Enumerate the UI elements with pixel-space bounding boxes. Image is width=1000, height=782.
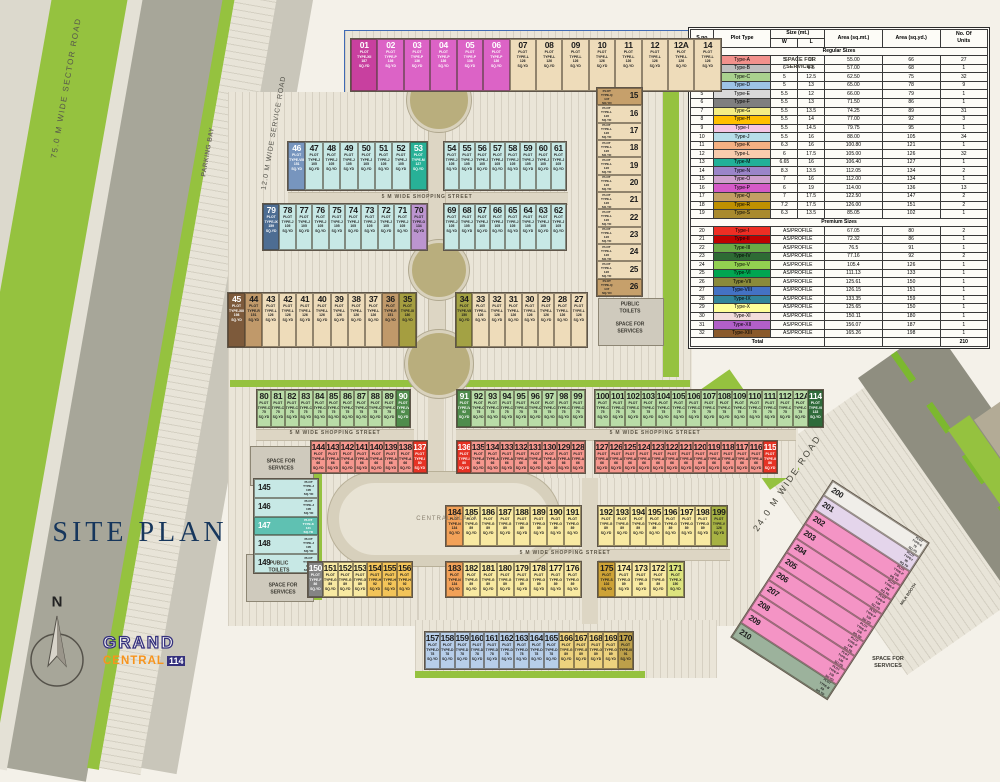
plot-label: PLOTTYPE-J105SQ.YD (397, 215, 409, 233)
plot-number: 11 (624, 41, 632, 50)
plot-number: 31 (509, 295, 518, 304)
plot-15: 15PLOTTYPE-Q147SQ.YD (597, 88, 642, 105)
plot-number: 78 (283, 206, 292, 215)
plot-number: 57 (493, 144, 502, 153)
plot-133: 133PLOTTYPE-A66SQ.YD (500, 441, 514, 473)
plot-130: 130PLOTTYPE-A66SQ.YD (542, 441, 556, 473)
plot-number: 121 (679, 443, 692, 452)
plot-label: PLOTTYPE-D78SQ.YD (471, 643, 483, 661)
plot-number: 60 (539, 144, 548, 153)
plot-91: 91PLOTTYPE-IV92SQ.YD (457, 390, 471, 427)
plot-label: PLOTTYPE-L126SQ.YD (601, 262, 612, 278)
plot-154: 154PLOTTYPE-H92SQ.YD (367, 562, 382, 597)
plot-number: 201 (820, 501, 835, 515)
plot-number: 179 (515, 564, 528, 573)
plot-label: PLOTTYPE-G89SQ.YD (648, 517, 661, 535)
plot-number: 85 (329, 392, 338, 401)
plot-57: 57PLOTTYPE-J105SQ.YD (490, 142, 505, 190)
plot-label: PLOTTYPE-J105SQ.YD (461, 215, 473, 233)
plot-label: PLOTTYPE-IV92SQ.YD (396, 401, 409, 419)
plot-label: PLOTTYPE-G89SQ.YD (549, 517, 562, 535)
plot-label: PLOTTYPE-P136SQ.YD (490, 50, 502, 68)
plot-89: 89PLOTTYPE-C75SQ.YD (382, 390, 396, 427)
plot-label: PLOTTYPE-D78SQ.YD (545, 643, 557, 661)
plot-number: 171 (669, 564, 682, 573)
plot-label: PLOTTYPE-S102SQ.YD (600, 573, 612, 591)
plot-label: PLOTTYPE-L126SQ.YD (316, 304, 328, 322)
plot-59: 59PLOTTYPE-J105SQ.YD (520, 142, 535, 190)
plot-number: 99 (573, 392, 582, 401)
plot-number: 54 (447, 144, 456, 153)
plot-number: 62 (554, 206, 563, 215)
plot-label: PLOTTYPE-A66SQ.YD (624, 452, 636, 470)
plot-number: 46 (292, 144, 301, 153)
plot-32: 32PLOTTYPE-L126SQ.YD (489, 293, 505, 347)
plot-strip: 192PLOTTYPE-G89SQ.YD193PLOTTYPE-G89SQ.YD… (597, 505, 728, 547)
plot-37: 37PLOTTYPE-L126SQ.YD (365, 293, 382, 347)
plot-label: PLOTTYPE-L126SQ.YD (265, 304, 277, 322)
plot-label: PLOTTYPE-G89SQ.YD (652, 573, 665, 591)
plot-105: 105PLOTTYPE-C75SQ.YD (671, 390, 686, 427)
plot-label: PLOTTYPE-XIII198SQ.YD (229, 304, 244, 322)
plot-label: PLOTTYPE-L126SQ.YD (350, 304, 362, 322)
plot-186: 186PLOTTYPE-G89SQ.YD (480, 506, 497, 546)
plot-23: 23PLOTTYPE-L126SQ.YD (597, 227, 642, 244)
plot-170: 170PLOTTYPE-III91SQ.YD (618, 632, 633, 669)
plot-label: PLOTTYPE-A66SQ.YD (680, 452, 692, 470)
plot-label: PLOTTYPE-IX159SQ.YD (265, 215, 278, 233)
plot-number: 09 (571, 41, 580, 50)
plot-number: 112A (793, 392, 808, 401)
plot-number: 76 (316, 206, 325, 215)
plot-93: 93PLOTTYPE-C75SQ.YD (485, 390, 499, 427)
plot-94: 94PLOTTYPE-C75SQ.YD (500, 390, 514, 427)
plot-116: 116PLOTTYPE-A66SQ.YD (749, 441, 763, 473)
plot-number: 197 (680, 508, 693, 517)
plot-label: PLOTTYPE-B68SQ.YD (815, 677, 833, 697)
table-row: S.noPlot TypeSize (mt.)Area (sq.mt.)Area… (691, 30, 988, 39)
plot-33: 33PLOTTYPE-L126SQ.YD (472, 293, 488, 347)
plot-label: PLOTTYPE-L126SQ.YD (556, 304, 568, 322)
plot-label: PLOTTYPE-C75SQ.YD (341, 401, 353, 419)
plot-05: 05PLOTTYPE-P136SQ.YD (457, 39, 483, 91)
plot-65: 65PLOTTYPE-J105SQ.YD (505, 204, 520, 250)
plot-117: 117PLOTTYPE-A66SQ.YD (735, 441, 749, 473)
plot-19: 19PLOTTYPE-L126SQ.YD (597, 157, 642, 174)
table-row: 17Type-Q717.5122.501472 (691, 192, 988, 201)
plot-number: 87 (357, 392, 366, 401)
plot-label: PLOTTYPE-A66SQ.YD (370, 452, 382, 470)
plot-number: 174 (617, 564, 630, 573)
plot-79: 79PLOTTYPE-IX159SQ.YD (263, 204, 279, 250)
plot-145: 145PLOTTYPE-J105SQ.YD (254, 479, 318, 498)
plot-71: 71PLOTTYPE-J105SQ.YD (394, 204, 410, 250)
plot-14: 14PLOTTYPE-L126SQ.YD (694, 39, 720, 91)
plot-label: PLOTTYPE-J105SQ.YD (491, 153, 503, 171)
plot-label: PLOTTYPE-XII187SQ.YD (357, 50, 371, 68)
plot-number: 193 (616, 508, 629, 517)
plot-34: 34PLOTTYPE-VII150SQ.YD (456, 293, 472, 347)
plot-label: PLOTTYPE-A66SQ.YD (596, 452, 608, 470)
plot-182: 182PLOTTYPE-G89SQ.YD (463, 562, 480, 597)
plot-183: 183PLOTTYPE-N134SQ.YD (446, 562, 463, 597)
plot-label: PLOTTYPE-C75SQ.YD (272, 401, 284, 419)
table-row: Regular Sizes (691, 47, 988, 56)
table-row: 9Type-I5.514.579.75951 (691, 124, 988, 133)
plot-number: 209 (746, 614, 761, 628)
label-space-for-services: SPACE FOR SERVICES (868, 656, 908, 670)
plot-number: 199 (712, 508, 725, 517)
plot-194: 194PLOTTYPE-G89SQ.YD (630, 506, 646, 546)
plot-114: 114PLOTTYPE-VI133SQ.YD (808, 390, 823, 427)
plot-138: 138PLOTTYPE-A66SQ.YD (398, 441, 413, 473)
plot-69: 69PLOTTYPE-J105SQ.YD (444, 204, 459, 250)
plot-label: PLOTTYPE-L126SQ.YD (702, 50, 714, 68)
plot-106: 106PLOTTYPE-C75SQ.YD (686, 390, 701, 427)
plot-number: 65 (508, 206, 517, 215)
plot-number: 14 (703, 41, 712, 50)
plot-number: 17 (630, 127, 638, 136)
plot-label: PLOTTYPE-G89SQ.YD (566, 517, 579, 535)
plot-label: PLOTTYPE-C75SQ.YD (472, 401, 484, 419)
plot-label: PLOTTYPE-H92SQ.YD (369, 573, 381, 591)
plot-label: PLOTTYPE-C75SQ.YD (557, 401, 569, 419)
plot-label: PLOTTYPE-O134SQ.YD (413, 215, 426, 233)
plot-label: PLOTTYPE-G89SQ.YD (516, 517, 529, 535)
label-5-m-wide-shopping-street: 5 M WIDE SHOPPING STREET (382, 194, 473, 200)
plot-label: PLOTTYPE-L126SQ.YD (601, 245, 612, 261)
plot-number: 133 (500, 443, 513, 452)
plot-number: 82 (287, 392, 296, 401)
plot-number: 67 (478, 206, 487, 215)
plot-118: 118PLOTTYPE-A66SQ.YD (721, 441, 735, 473)
plot-46: 46PLOTTYPE-VIII151SQ.YD (288, 142, 305, 190)
table-row: 28Type-IXAS/PROFILE133.351591 (691, 295, 988, 304)
plot-strip: 127PLOTTYPE-A66SQ.YD126PLOTTYPE-A66SQ.YD… (594, 440, 778, 474)
table-row: 27Type-VIIIAS/PROFILE126.151511 (691, 287, 988, 296)
plot-strip: 144PLOTTYPE-A66SQ.YD143PLOTTYPE-A66SQ.YD… (310, 440, 428, 474)
table-row: 20Type-IAS/PROFILE67.05802 (691, 227, 988, 236)
plot-number: 92 (474, 392, 483, 401)
plot-54: 54PLOTTYPE-J105SQ.YD (444, 142, 459, 190)
plot-number: 20 (630, 179, 638, 188)
table-row: 11Type-K6.316100.801211 (691, 141, 988, 150)
plot-number: 48 (327, 144, 336, 153)
plot-141: 141PLOTTYPE-A66SQ.YD (355, 441, 370, 473)
label-space-for-services: SPACE FOR SERVICES (263, 459, 299, 472)
plot-104: 104PLOTTYPE-C75SQ.YD (656, 390, 671, 427)
plot-174: 174PLOTTYPE-G89SQ.YD (615, 562, 632, 597)
plot-30: 30PLOTTYPE-L126SQ.YD (522, 293, 538, 347)
table-row: 12Type-L617.5105.0012632 (691, 150, 988, 159)
plot-number: 51 (379, 144, 388, 153)
plot-number: 165 (545, 634, 558, 643)
plot-20: 20PLOTTYPE-L126SQ.YD (597, 175, 642, 192)
plot-27: 27PLOTTYPE-L126SQ.YD (571, 293, 587, 347)
central-axis-street-mid (428, 392, 444, 478)
plot-label: PLOTTYPE-G89SQ.YD (533, 573, 546, 591)
plot-number: 45 (232, 295, 241, 304)
plot-146: 146PLOTTYPE-J105SQ.YD (254, 498, 318, 517)
plot-label: PLOTTYPE-J105SQ.YD (522, 153, 534, 171)
plot-122: 122PLOTTYPE-A66SQ.YD (665, 441, 679, 473)
plot-63: 63PLOTTYPE-J105SQ.YD (536, 204, 551, 250)
plot-label: PLOTTYPE-J105SQ.YD (314, 215, 326, 233)
plot-147: 147PLOTTYPE-K121SQ.YD (254, 517, 318, 536)
plot-29: 29PLOTTYPE-L126SQ.YD (538, 293, 554, 347)
plot-number: 191 (566, 508, 579, 517)
plot-label: PLOTTYPE-C75SQ.YD (703, 401, 715, 419)
logo-114-badge: 114 (167, 656, 186, 666)
plot-label: PLOTTYPE-H92SQ.YD (398, 573, 410, 591)
plot-label: PLOTTYPE-G89SQ.YD (465, 573, 478, 591)
plot-number: 64 (523, 206, 532, 215)
plot-label: PLOTTYPE-C75SQ.YD (688, 401, 700, 419)
plot-101: 101PLOTTYPE-C75SQ.YD (610, 390, 625, 427)
plot-label: PLOTTYPE-III91SQ.YD (619, 643, 632, 661)
plot-number: 81 (273, 392, 282, 401)
plot-172: 172PLOTTYPE-G89SQ.YD (650, 562, 667, 597)
plot-label: PLOTTYPE-C75SQ.YD (383, 401, 395, 419)
plot-152: 152PLOTTYPE-G89SQ.YD (338, 562, 353, 597)
plot-number: 202 (811, 515, 826, 529)
plot-number: 178 (532, 564, 545, 573)
plot-label: PLOTTYPE-C75SQ.YD (369, 401, 381, 419)
plot-number: 55 (462, 144, 471, 153)
plot-number: 154 (368, 564, 381, 573)
plot-number: 136 (457, 443, 470, 452)
plot-number: 117 (736, 443, 749, 452)
plot-label: PLOTTYPE-G89SQ.YD (354, 573, 367, 591)
plot-label: PLOTTYPE-J105SQ.YD (537, 153, 549, 171)
plot-label: PLOTTYPE-R151SQ.YD (384, 304, 396, 322)
plot-number: 186 (482, 508, 495, 517)
plot-label: PLOTTYPE-L126SQ.YD (475, 304, 487, 322)
table-row: 32Type-XIIIAS/PROFILE165.261981 (691, 329, 988, 338)
plot-52: 52PLOTTYPE-J105SQ.YD (392, 142, 409, 190)
plot-label: PLOTTYPE-P136SQ.YD (411, 50, 423, 68)
label-space-for-services: SPACE FOR SERVICES (780, 57, 820, 71)
plot-strip: 175PLOTTYPE-S102SQ.YD174PLOTTYPE-G89SQ.Y… (597, 561, 685, 598)
plot-number: 44 (249, 295, 258, 304)
plot-label: PLOTTYPE-L126SQ.YD (573, 304, 585, 322)
plot-label: PLOTTYPE-J105SQ.YD (360, 153, 372, 171)
label-site-plan: SITE PLAN (52, 517, 227, 549)
plot-number: 138 (399, 443, 412, 452)
plot-number: 203 (802, 529, 817, 543)
plot-number: 173 (634, 564, 647, 573)
plot-50: 50PLOTTYPE-J105SQ.YD (358, 142, 375, 190)
plot-label: PLOTTYPE-C75SQ.YD (258, 401, 270, 419)
plot-197: 197PLOTTYPE-G89SQ.YD (679, 506, 695, 546)
plot-175: 175PLOTTYPE-S102SQ.YD (598, 562, 615, 597)
plot-label: PLOTTYPE-G89SQ.YD (516, 573, 529, 591)
plot-label: PLOTTYPE-J105SQ.YD (395, 153, 407, 171)
plot-label: PLOTTYPE-C75SQ.YD (543, 401, 555, 419)
plot-number: 70 (414, 206, 423, 215)
plot-168: 168PLOTTYPE-G89SQ.YD (588, 632, 603, 669)
plot-number: 27 (574, 295, 583, 304)
plot-number: 43 (266, 295, 275, 304)
plot-number: 147 (258, 522, 270, 531)
plot-75: 75PLOTTYPE-J105SQ.YD (329, 204, 345, 250)
grand-central-logo: GRAND CENTRAL114 (103, 634, 185, 668)
plot-label: PLOTTYPE-C75SQ.YD (355, 401, 367, 419)
plot-label: PLOTTYPE-D78SQ.YD (486, 643, 498, 661)
plot-181: 181PLOTTYPE-G89SQ.YD (480, 562, 497, 597)
plot-strip: 136PLOTTYPE-I80SQ.YD135PLOTTYPE-A66SQ.YD… (456, 440, 586, 474)
plot-191: 191PLOTTYPE-G89SQ.YD (564, 506, 581, 546)
plot-label: PLOTTYPE-L126SQ.YD (333, 304, 345, 322)
plot-180: 180PLOTTYPE-G89SQ.YD (497, 562, 514, 597)
plot-label: PLOTTYPE-G89SQ.YD (549, 573, 562, 591)
plot-label: PLOTTYPE-G89SQ.YD (499, 517, 512, 535)
plot-55: 55PLOTTYPE-J105SQ.YD (459, 142, 474, 190)
plot-number: 108 (718, 392, 731, 401)
plot-number: 49 (344, 144, 353, 153)
plot-label: PLOTTYPE-G89SQ.YD (482, 573, 495, 591)
table-row: 31Type-XIIAS/PROFILE156.071871 (691, 321, 988, 330)
plot-90: 90PLOTTYPE-IV92SQ.YD (396, 390, 410, 427)
plot-number: 106 (687, 392, 700, 401)
plot-number: 189 (532, 508, 545, 517)
plot-number: 124 (637, 443, 650, 452)
plot-label: PLOTTYPE-C75SQ.YD (286, 401, 298, 419)
label-5-m-wide-shopping-street: 5 M WIDE SHOPPING STREET (610, 430, 701, 436)
plot-label: PLOTTYPE-L126SQ.YD (491, 304, 503, 322)
plot-42: 42PLOTTYPE-L126SQ.YD (279, 293, 296, 347)
label-space-for-services: SPACE FOR SERVICES (265, 583, 301, 596)
plot-number: 141 (355, 443, 368, 452)
plot-label: PLOTTYPE-L126SQ.YD (601, 210, 612, 226)
plot-number: 177 (549, 564, 562, 573)
plot-161: 161PLOTTYPE-D78SQ.YD (484, 632, 499, 669)
plot-label: PLOTTYPE-C75SQ.YD (794, 401, 806, 419)
plot-04: 04PLOTTYPE-P136SQ.YD (430, 39, 456, 91)
plot-108: 108PLOTTYPE-C75SQ.YD (717, 390, 732, 427)
plot-number: 35 (403, 295, 412, 304)
plot-number: 157 (426, 634, 439, 643)
plot-number: 71 (398, 206, 407, 215)
plot-number: 176 (566, 564, 579, 573)
plot-label: PLOTTYPE-J105SQ.YD (461, 153, 473, 171)
plot-number: 03 (413, 41, 422, 50)
plot-187: 187PLOTTYPE-G89SQ.YD (497, 506, 514, 546)
plot-188: 188PLOTTYPE-G89SQ.YD (514, 506, 531, 546)
plot-number: 33 (476, 295, 485, 304)
plot-number: 08 (545, 41, 554, 50)
plot-number: 38 (352, 295, 361, 304)
plot-137: 137PLOTTYPE-I80SQ.YD (413, 441, 428, 473)
table-row: 7Type-G5.513.574.258931 (691, 107, 988, 116)
plot-02: 02PLOTTYPE-P136SQ.YD (377, 39, 403, 91)
plot-label: PLOTTYPE-F86SQ.YD (309, 573, 321, 591)
plot-label: PLOTTYPE-J105SQ.YD (476, 153, 488, 171)
plot-strip: 69PLOTTYPE-J105SQ.YD68PLOTTYPE-J105SQ.YD… (443, 203, 567, 251)
plot-number: 120 (693, 443, 706, 452)
plot-label: PLOTTYPE-L126SQ.YD (596, 50, 608, 68)
plot-label: PLOTTYPE-G89SQ.YD (664, 517, 677, 535)
plot-number: 198 (696, 508, 709, 517)
plot-number: 156 (398, 564, 411, 573)
plot-label: PLOTTYPE-J105SQ.YD (298, 215, 310, 233)
plot-36: 36PLOTTYPE-R151SQ.YD (382, 293, 399, 347)
plot-number: 96 (531, 392, 540, 401)
plot-number: 73 (365, 206, 374, 215)
plot-number: 56 (478, 144, 487, 153)
plot-label: PLOTTYPE-J105SQ.YD (331, 215, 343, 233)
plot-80: 80PLOTTYPE-C75SQ.YD (257, 390, 271, 427)
plot-label: PLOTTYPE-A66SQ.YD (472, 452, 484, 470)
plot-22: 22PLOTTYPE-L126SQ.YD (597, 209, 642, 226)
plot-number: 40 (318, 295, 327, 304)
plot-label: PLOTTYPE-L126SQ.YD (601, 141, 612, 157)
plot-77: 77PLOTTYPE-J105SQ.YD (296, 204, 312, 250)
plot-158: 158PLOTTYPE-D78SQ.YD (440, 632, 455, 669)
plot-label: PLOTTYPE-C75SQ.YD (486, 401, 498, 419)
plot-number: 205 (783, 557, 798, 571)
table-row: 16Type-P619114.0013613 (691, 184, 988, 193)
plot-label: PLOTTYPE-P136SQ.YD (437, 50, 449, 68)
plot-73: 73PLOTTYPE-J105SQ.YD (361, 204, 377, 250)
plot-label: PLOTTYPE-G89SQ.YD (560, 643, 573, 661)
table-row: 2Type-B69.557.00681 (691, 64, 988, 73)
plot-171: 171PLOTTYPE-X150SQ.YD (667, 562, 684, 597)
plot-111: 111PLOTTYPE-C75SQ.YD (762, 390, 777, 427)
plot-number: 100 (596, 392, 609, 401)
plot-label: PLOTTYPE-IV92SQ.YD (458, 401, 471, 419)
plot-number: 94 (502, 392, 511, 401)
plot-193: 193PLOTTYPE-G89SQ.YD (614, 506, 630, 546)
table-row: 18Type-R7.217.5126.001512 (691, 201, 988, 210)
plot-97: 97PLOTTYPE-C75SQ.YD (542, 390, 556, 427)
plot-label: PLOTTYPE-C75SQ.YD (501, 401, 513, 419)
plot-25: 25PLOTTYPE-L126SQ.YD (597, 261, 642, 278)
plot-label: PLOTTYPE-G89SQ.YD (604, 643, 617, 661)
table-row: 24Type-VAS/PROFILE105.41261 (691, 261, 988, 270)
plot-38: 38PLOTTYPE-L126SQ.YD (348, 293, 365, 347)
plot-11: 11PLOTTYPE-L126SQ.YD (615, 39, 641, 91)
plot-number: 04 (439, 41, 448, 50)
plot-label: PLOTTYPE-J105SQ.YD (446, 215, 458, 233)
plot-119: 119PLOTTYPE-A66SQ.YD (707, 441, 721, 473)
plot-number: 86 (343, 392, 352, 401)
plot-179: 179PLOTTYPE-G89SQ.YD (514, 562, 531, 597)
plot-64: 64PLOTTYPE-J105SQ.YD (520, 204, 535, 250)
plot-178: 178PLOTTYPE-G89SQ.YD (530, 562, 547, 597)
plot-number: 28 (558, 295, 567, 304)
plot-label: PLOTTYPE-G89SQ.YD (632, 517, 645, 535)
plot-label: PLOTTYPE-C75SQ.YD (764, 401, 776, 419)
plot-label: PLOTTYPE-J105SQ.YD (491, 215, 503, 233)
plot-label: PLOTTYPE-G89SQ.YD (339, 573, 352, 591)
plot-190: 190PLOTTYPE-G89SQ.YD (547, 506, 564, 546)
plot-label: PLOTTYPE-J105SQ.YD (308, 153, 320, 171)
plot-number: 143 (326, 443, 339, 452)
plot-number: 95 (517, 392, 526, 401)
plot-strip: 80PLOTTYPE-C75SQ.YD81PLOTTYPE-C75SQ.YD82… (256, 389, 411, 428)
plot-label: PLOTTYPE-G89SQ.YD (697, 517, 710, 535)
plot-number: 170 (619, 634, 632, 643)
plot-number: 180 (498, 564, 511, 573)
plot-label: PLOTTYPE-P136SQ.YD (464, 50, 476, 68)
plot-number: 115 (764, 443, 777, 452)
plot-label: PLOTTYPE-D78SQ.YD (515, 643, 527, 661)
plot-label: PLOTTYPE-A66SQ.YD (722, 452, 734, 470)
plot-label: PLOTTYPE-J105SQ.YD (537, 215, 549, 233)
plot-number: 109 (733, 392, 746, 401)
table-row: 5Type-E5.51266.00791 (691, 90, 988, 99)
